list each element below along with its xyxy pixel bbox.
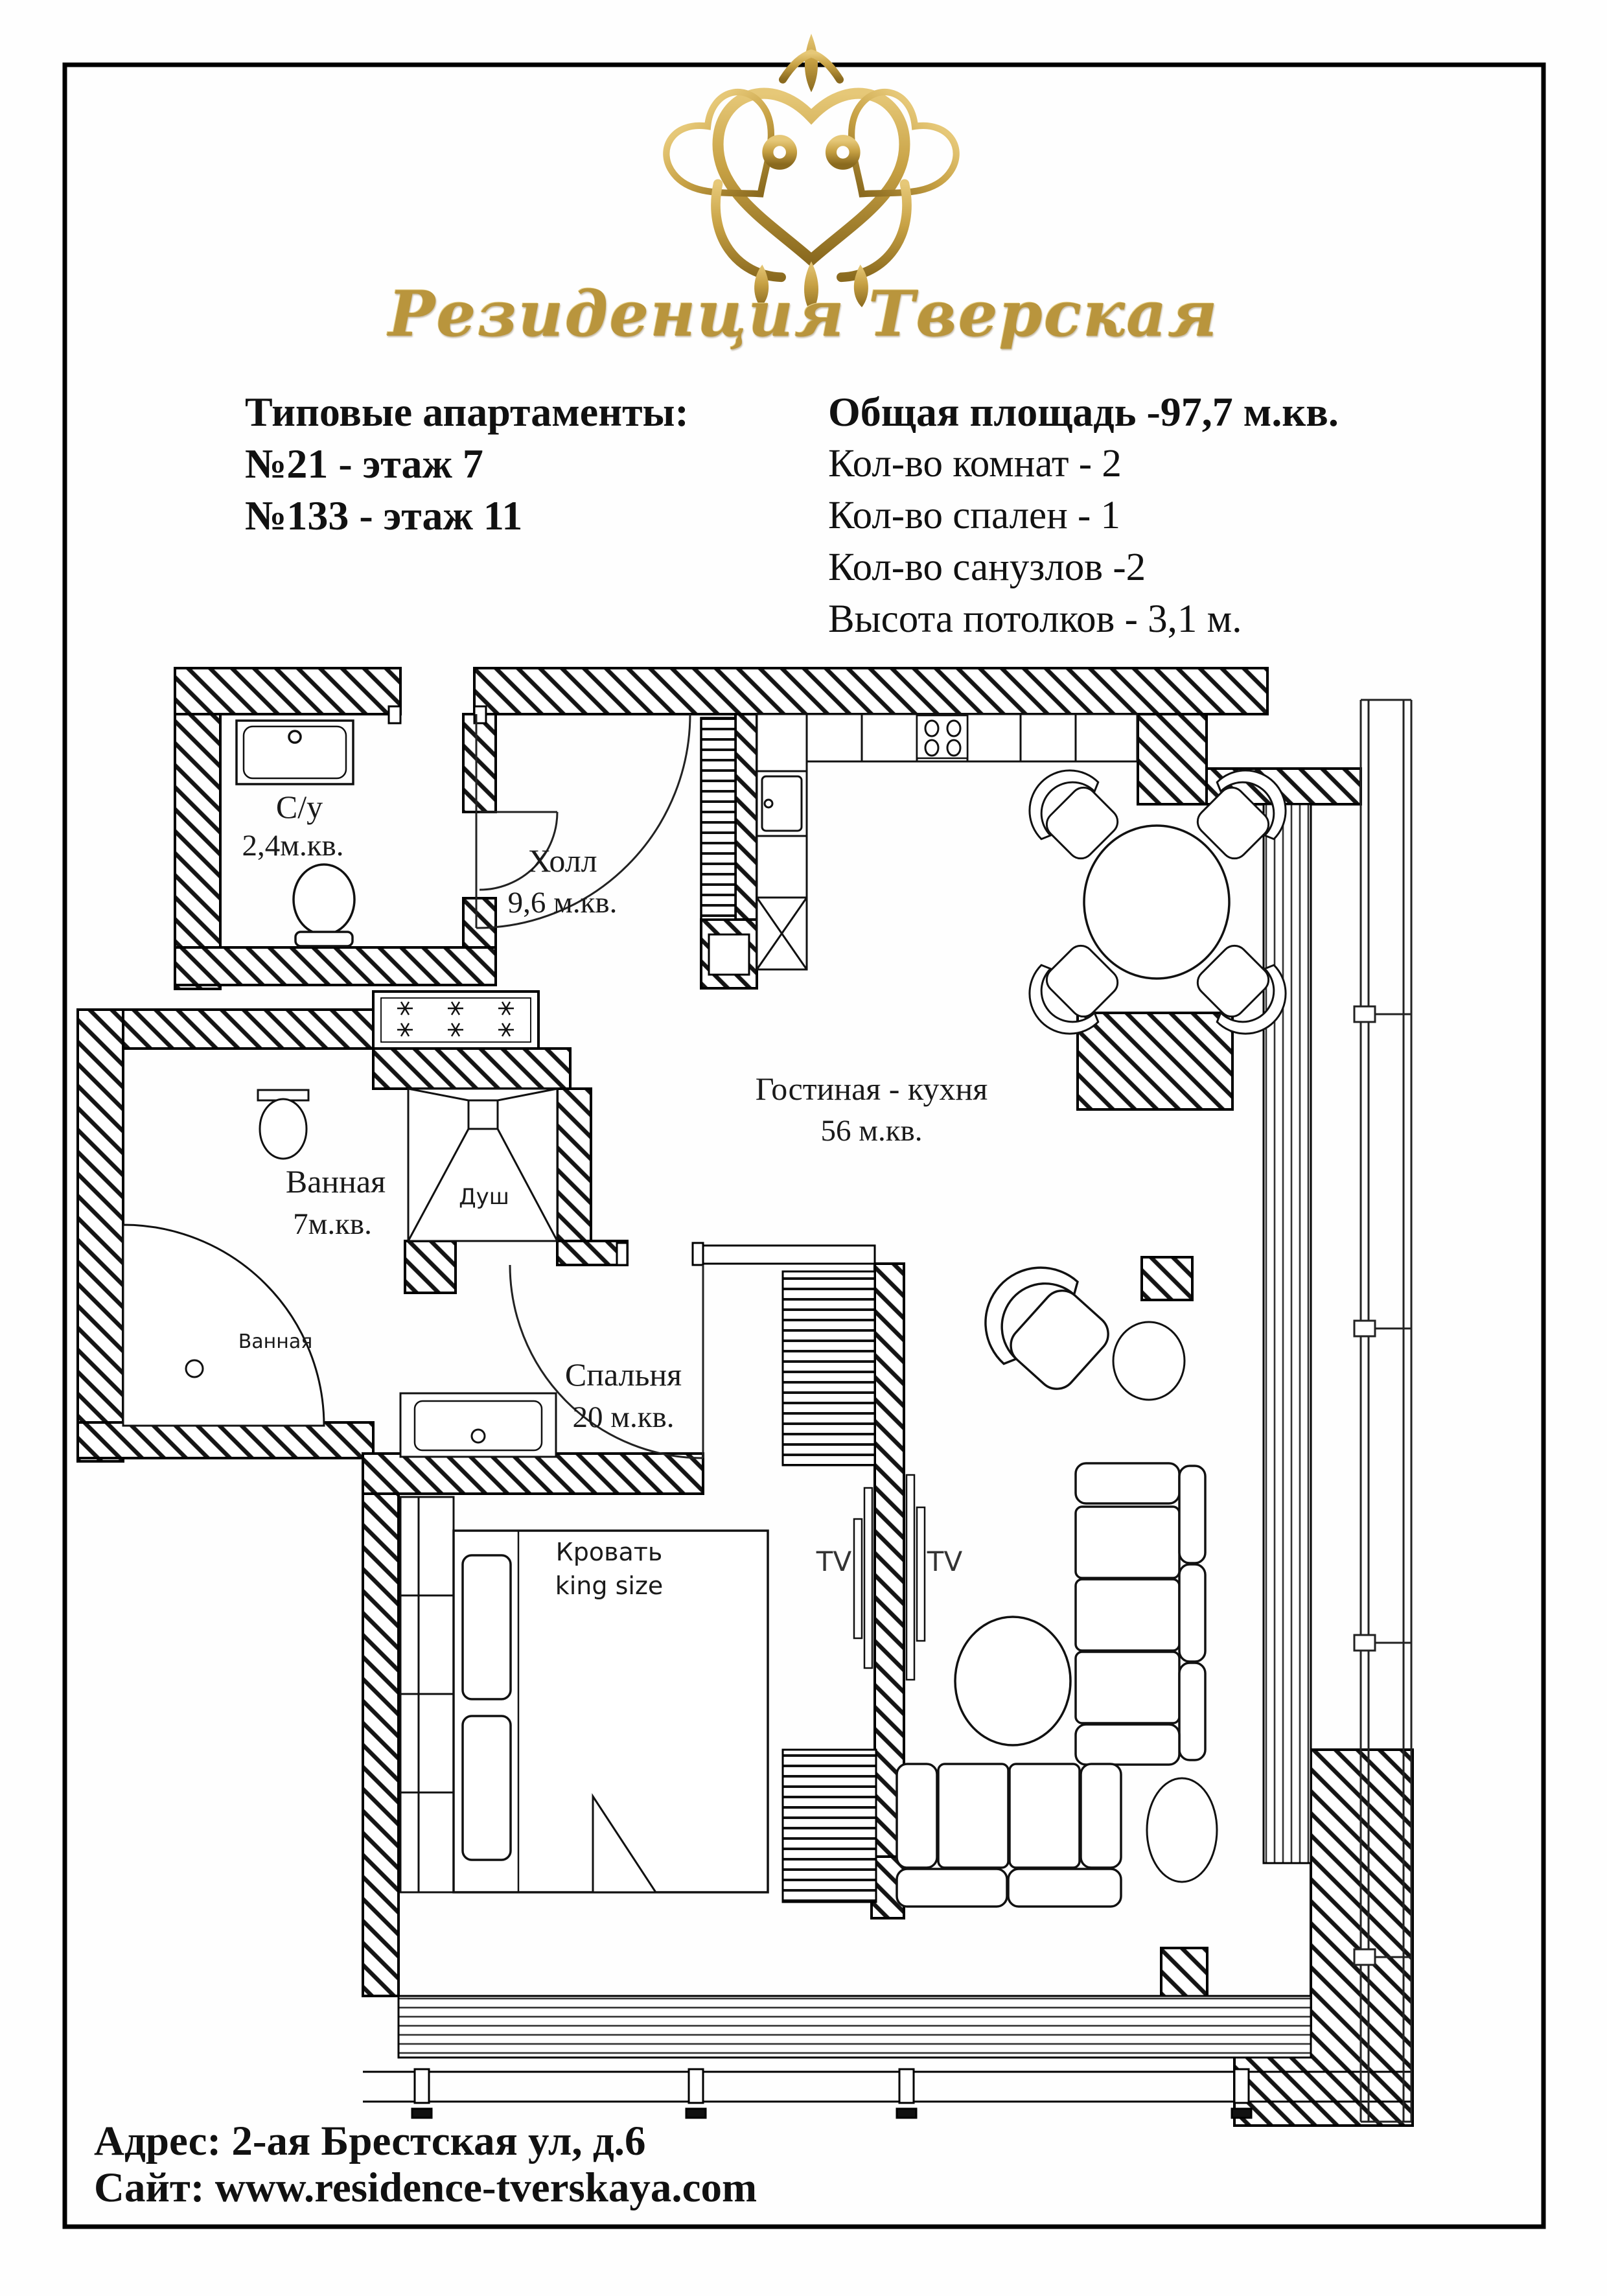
sink-faucet-icon — [289, 731, 301, 743]
window-sill-band — [399, 1996, 1311, 2058]
tv-living-icon — [907, 1475, 914, 1680]
window-glazing-band — [1264, 804, 1311, 1863]
kitchen-tall-units — [757, 714, 807, 969]
corner-bathtub — [123, 1225, 324, 1426]
apartment-info-block: Типовые апартаменты: №21 - этаж 7 №133 -… — [245, 386, 689, 542]
address-line: Адрес: 2-ая Брестская ул, д.6 — [94, 2118, 757, 2164]
wall-corner-column — [1234, 1750, 1413, 2126]
footer-contacts: Адрес: 2-ая Брестская ул, д.6 Сайт: www.… — [94, 2118, 757, 2211]
spec-line: Кол-во комнат - 2 — [828, 438, 1339, 490]
label-living-area: 56 м.кв. — [820, 1114, 922, 1148]
pillow — [463, 1716, 511, 1860]
coat-hook-niche — [373, 991, 538, 1049]
wall-bath-top-left — [123, 1010, 373, 1049]
label-wc: С/у — [276, 789, 323, 825]
wc-toilet — [294, 864, 354, 934]
label-wc-area: 2,4м.кв. — [242, 829, 343, 863]
label-tub: Ванная — [238, 1330, 313, 1353]
tv-living-icon — [917, 1507, 925, 1641]
kitchen-counter — [807, 714, 1137, 761]
wall-bedroom-top-thin — [703, 1246, 875, 1264]
wall-step-topright — [1138, 714, 1207, 804]
label-tv-bedroom: TV — [816, 1546, 852, 1577]
armchair — [963, 1245, 1124, 1406]
wall-wc-right-bottom — [463, 898, 496, 947]
tv-bedroom-icon — [864, 1488, 872, 1668]
specs-block: Общая площадь -97,7 м.кв. Кол-во комнат … — [828, 386, 1339, 645]
spec-line: Кол-во спален - 1 — [828, 490, 1339, 542]
bath-vanity — [400, 1393, 556, 1457]
wall-shower-stub — [405, 1241, 456, 1293]
spec-line: Высота потолков - 3,1 м. — [828, 594, 1339, 645]
kitchen-island — [1078, 1013, 1232, 1109]
apartment-line: №133 - этаж 11 — [245, 490, 689, 542]
stove-hob-icon — [917, 715, 967, 758]
label-bath: Ванная — [286, 1163, 386, 1200]
sofa-three-seat — [1076, 1463, 1205, 1765]
brand-crown-icon — [655, 34, 968, 314]
wall-bath-right — [557, 1089, 591, 1241]
spec-line: Кол-во санузлов -2 — [828, 542, 1339, 594]
website-line: Сайт: www.residence-tverskaya.com — [94, 2164, 757, 2211]
label-hall: Холл — [527, 842, 597, 879]
side-table-oval — [1113, 1322, 1185, 1400]
wall-top-left — [175, 668, 400, 714]
hall-wardrobe — [701, 718, 735, 920]
label-bed-2: king size — [555, 1571, 664, 1600]
tv-cabinet-bedroom — [783, 1271, 875, 1465]
sofa-two-seat — [897, 1764, 1121, 1907]
wall-bath-bottom — [78, 1422, 373, 1458]
label-bedroom-area: 20 м.кв. — [572, 1400, 674, 1434]
label-living: Гостиная - кухня — [756, 1071, 988, 1107]
wall-wc-right-top — [463, 714, 496, 812]
total-area: Общая площадь -97,7 м.кв. — [828, 386, 1339, 438]
bathroom — [123, 1089, 557, 1457]
wall-hall-kitchen — [735, 714, 757, 920]
bath-toilet — [260, 1099, 306, 1159]
door-jamb — [617, 1243, 627, 1265]
label-bed-1: Кровать — [556, 1538, 663, 1566]
wall-bath-top-right — [373, 1049, 570, 1089]
shower-cabin — [408, 1089, 557, 1241]
wall-bedroom-left — [363, 1494, 399, 1996]
brand-script-title: Резиденция Тверская — [0, 277, 1607, 351]
tv-bedroom-icon — [854, 1519, 862, 1638]
pillow — [463, 1555, 511, 1699]
label-bath-area: 7м.кв. — [293, 1207, 372, 1241]
label-hall-area: 9,6 м.кв. — [508, 886, 618, 920]
plan-sheet: С/у 2,4м.кв. Холл 9,6 м.кв. Гостиная - к… — [0, 0, 1607, 2296]
label-tv-living: TV — [927, 1546, 963, 1577]
wc-toilet-base — [295, 932, 353, 946]
end-table-oval — [1147, 1778, 1217, 1882]
wall-wc-bottom — [175, 947, 496, 985]
apartment-line: №21 - этаж 7 — [245, 438, 689, 490]
wall-bath-left — [78, 1010, 123, 1461]
apartments-title: Типовые апартаменты: — [245, 386, 689, 438]
tv-cabinet-living — [783, 1750, 876, 1902]
label-shower: Душ — [459, 1184, 509, 1210]
dining-table — [1084, 826, 1229, 979]
side-table-square — [1142, 1257, 1192, 1300]
duct-shaft-inset — [709, 934, 749, 975]
wall-bed-bath — [363, 1454, 703, 1494]
door-jamb — [693, 1243, 703, 1265]
coffee-table-oval — [955, 1617, 1070, 1745]
wall-top-main — [474, 668, 1267, 714]
label-bedroom: Спальня — [565, 1356, 682, 1393]
door-jamb — [389, 706, 400, 723]
